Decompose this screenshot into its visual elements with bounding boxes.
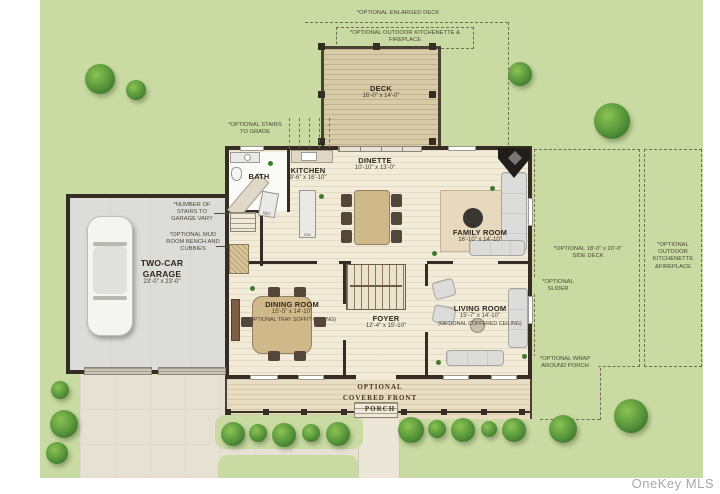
ref-label: REF: [263, 210, 272, 216]
wall-dining-foyer-2: [343, 340, 346, 379]
stairs-vary-leader: [214, 213, 228, 214]
plant: [522, 354, 527, 359]
enlarged-deck-dash-right: [508, 22, 509, 150]
garage-entry-steps: [230, 212, 256, 232]
plant: [250, 286, 255, 291]
wall-foyer-living-2: [425, 332, 428, 379]
enlarged-deck-dash-top: [305, 22, 508, 23]
lawn-patch: [218, 455, 358, 478]
porch-post: [225, 409, 231, 415]
front-door-opening: [356, 375, 396, 380]
deck-label: DECK 16'-0" x 14'-0": [348, 84, 414, 101]
porch-post: [519, 409, 525, 415]
stairs-to-grade-label: *OPTIONAL STAIRS TO GRADE: [226, 122, 284, 136]
kitchen-dims: 9'-6" x 16'-10": [277, 175, 339, 183]
foundation-bush: [428, 420, 446, 438]
bath-sink: [244, 154, 251, 161]
car-rear-window: [93, 296, 127, 300]
enlarged-deck-label: *OPTIONAL ENLARGED DECK: [318, 10, 478, 17]
dinette-chair: [391, 212, 402, 225]
dining-chair: [268, 287, 280, 297]
tree: [50, 410, 78, 438]
plant: [436, 360, 441, 365]
car-windshield: [93, 242, 127, 246]
dining-room-label: DINING ROOM 15'-5" x 14'-10" (OPTIONAL T…: [238, 300, 346, 323]
tree: [614, 399, 648, 433]
wall-mudhall: [260, 212, 263, 266]
living-room-dims: 15'-7" x 14'-10": [432, 313, 528, 321]
watermark: OneKey MLS: [632, 476, 714, 491]
plant: [319, 194, 324, 199]
living-room-note: (OPTIONAL COFFERED CEILING): [432, 321, 528, 328]
slider-label: *OPTIONAL SLIDER: [534, 279, 582, 293]
window-front-2: [298, 375, 324, 380]
foundation-bush: [302, 424, 320, 442]
window-front-1: [250, 375, 278, 380]
kitchen-name: KITCHEN: [277, 166, 339, 175]
living-room-label: LIVING ROOM 15'-7" x 14'-10" (OPTIONAL C…: [432, 304, 528, 327]
dining-room-name: DINING ROOM: [238, 300, 346, 309]
porch-post: [481, 409, 487, 415]
tree: [51, 381, 69, 399]
wall-mid-4: [498, 261, 530, 264]
wall-foyer-living-1: [425, 264, 428, 286]
family-room-dims: 16'-10" x 14'-10": [428, 237, 532, 245]
staircase: [346, 264, 406, 310]
dinette-chair: [391, 194, 402, 207]
plant: [432, 251, 437, 256]
tree: [594, 103, 630, 139]
dining-chair: [294, 351, 306, 361]
plant: [268, 161, 273, 166]
tree: [549, 415, 577, 443]
garage-door-left: [84, 367, 152, 375]
mud-room-leader: [216, 246, 228, 247]
garage-dims: 23'-0" x 23'-0": [132, 279, 192, 287]
foyer-dims: 12'-4" x 15'-10": [360, 323, 412, 331]
deck-post: [429, 91, 436, 98]
front-porch-label: OPTIONAL COVERED FRONT PORCH: [338, 382, 422, 416]
dinette-chair: [341, 194, 352, 207]
dining-room-note: (OPTIONAL TRAY SOFFIT CEILING): [238, 317, 346, 324]
family-room-name: FAMILY ROOM: [428, 228, 532, 237]
kitchenette-top-label: *OPTIONAL OUTDOOR KITCHENETTE & FIREPLAC…: [340, 30, 470, 44]
window-front-3: [443, 375, 469, 380]
dinette-chair: [341, 230, 352, 243]
wrap-porch-label: *OPTIONAL WRAP AROUND PORCH: [532, 356, 598, 370]
dinette-label: DINETTE 10'-10" x 13'-0": [338, 156, 412, 173]
mud-room-bench: [229, 244, 249, 274]
grade-stair-dash: [309, 118, 310, 148]
dining-chair: [268, 351, 280, 361]
foyer-name: FOYER: [360, 314, 412, 323]
deck-post: [373, 43, 380, 50]
foundation-bush: [249, 424, 267, 442]
foundation-bush: [398, 417, 424, 443]
living-sofa-bottom: [446, 350, 504, 366]
window-right-1: [528, 198, 533, 226]
dinette-name: DINETTE: [338, 156, 412, 165]
foyer-label: FOYER 12'-4" x 15'-10": [360, 314, 412, 331]
grade-stair-dash: [289, 118, 290, 148]
window-rear-1: [240, 146, 264, 151]
family-room-label: FAMILY ROOM 16'-10" x 14'-10": [428, 228, 532, 245]
grade-stair-dash: [319, 118, 320, 148]
dining-chair: [294, 287, 306, 297]
dining-room-dims: 15'-5" x 14'-10": [238, 309, 346, 317]
deck-door: [338, 146, 422, 152]
foundation-bush: [326, 422, 350, 446]
window-rear-2: [448, 146, 476, 151]
porch-post: [263, 409, 269, 415]
dinette-dims: 10'-10" x 13'-0": [338, 165, 412, 173]
kitchen-label: KITCHEN 9'-6" x 16'-10": [277, 166, 339, 183]
garage-door-right: [158, 367, 226, 375]
stair-rail: [350, 285, 402, 287]
foundation-bush: [451, 418, 475, 442]
dw-label: DW: [304, 232, 311, 237]
wall-mid-3: [427, 261, 453, 264]
dining-chair: [314, 317, 326, 327]
kitchen-island-dw: DW: [299, 190, 316, 238]
dinette-table: [354, 190, 390, 245]
porch-post: [401, 409, 407, 415]
grade-stair-dash: [329, 118, 330, 148]
floor-plan: *OPTIONAL ENLARGED DECK *OPTIONAL OUTDOO…: [0, 0, 720, 494]
porch-post: [301, 409, 307, 415]
foundation-bush: [221, 422, 245, 446]
foundation-bush: [481, 421, 497, 437]
side-deck-label: *OPTIONAL 18'-0" x 20'-0" SIDE DECK: [547, 246, 629, 260]
stairs-vary-label: *NUMBER OF STAIRS TO GARAGE VARY: [166, 202, 218, 224]
window-right-2: [528, 296, 533, 324]
deck-post: [318, 91, 325, 98]
kitchenette-right-label: *OPTIONAL OUTDOOR KITCHENETTE &FIREPLACE: [646, 242, 700, 271]
garage-label: TWO-CAR GARAGE 23'-0" x 23'-0": [132, 258, 192, 287]
garage-name: TWO-CAR GARAGE: [132, 258, 192, 279]
foundation-bush: [502, 418, 526, 442]
plant: [490, 186, 495, 191]
dinette-chair: [341, 212, 352, 225]
porch-post: [341, 409, 347, 415]
deck-post: [429, 138, 436, 145]
foundation-bush: [272, 423, 296, 447]
deck-post: [429, 43, 436, 50]
dining-chair: [241, 317, 253, 327]
dinette-chair: [391, 230, 402, 243]
deck-dims: 16'-0" x 14'-0": [348, 93, 414, 101]
family-ottoman: [463, 208, 483, 228]
kitchen-sink: [301, 152, 317, 161]
wrap-porch-dash-v: [600, 368, 601, 420]
living-room-name: LIVING ROOM: [432, 304, 528, 313]
window-front-4: [491, 375, 517, 380]
grade-stair-dash: [299, 118, 300, 148]
deck-name: DECK: [348, 84, 414, 93]
porch-post: [441, 409, 447, 415]
tree: [85, 64, 115, 94]
deck-post: [318, 43, 325, 50]
car-roof: [93, 246, 127, 294]
mud-room-label: *OPTIONAL MUD ROOM BENCH AND CUBBIES: [166, 232, 220, 254]
porch-rail-left: [225, 411, 355, 413]
tree: [508, 62, 532, 86]
tree: [46, 442, 68, 464]
tree: [126, 80, 146, 100]
